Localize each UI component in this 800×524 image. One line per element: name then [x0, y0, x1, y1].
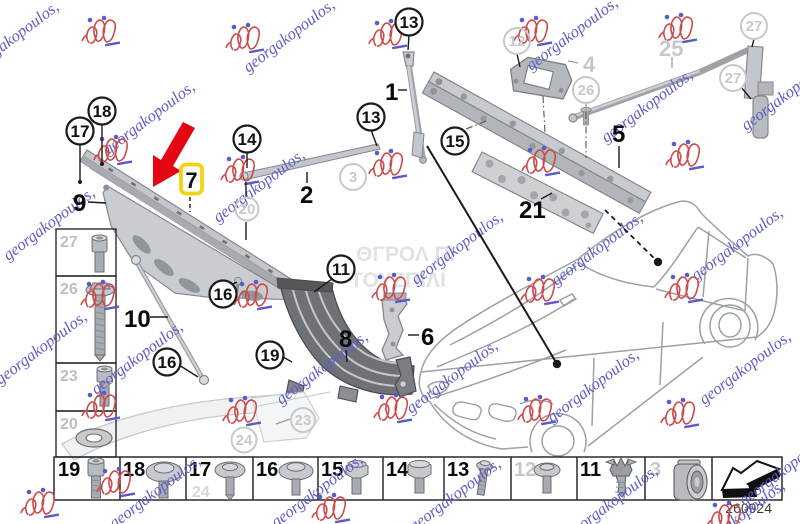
svg-text:11: 11 [332, 260, 350, 279]
svg-text:26: 26 [578, 82, 595, 99]
svg-text:10: 10 [124, 306, 151, 333]
svg-text:18: 18 [93, 102, 112, 121]
svg-text:13: 13 [362, 108, 381, 127]
svg-text:27: 27 [746, 18, 763, 35]
svg-text:27: 27 [725, 70, 742, 87]
svg-text:25: 25 [659, 36, 683, 61]
svg-text:17: 17 [71, 122, 90, 141]
svg-text:9: 9 [73, 190, 86, 217]
svg-text:21: 21 [519, 197, 546, 224]
svg-text:20: 20 [239, 201, 256, 218]
svg-text:4: 4 [583, 52, 596, 77]
svg-text:15: 15 [446, 132, 465, 151]
svg-text:16: 16 [158, 353, 177, 372]
svg-text:19: 19 [261, 346, 280, 365]
svg-text:5: 5 [612, 121, 625, 148]
svg-text:14: 14 [238, 130, 257, 149]
svg-text:23: 23 [295, 412, 312, 429]
svg-text:7: 7 [185, 168, 197, 193]
svg-text:3: 3 [349, 169, 357, 186]
svg-text:8: 8 [339, 326, 352, 353]
svg-text:1: 1 [385, 79, 398, 106]
svg-text:6: 6 [421, 324, 434, 351]
svg-text:16: 16 [214, 285, 233, 304]
svg-text:13: 13 [400, 13, 419, 32]
svg-text:24: 24 [236, 432, 253, 449]
svg-text:12: 12 [509, 33, 526, 50]
svg-text:2: 2 [300, 182, 313, 209]
